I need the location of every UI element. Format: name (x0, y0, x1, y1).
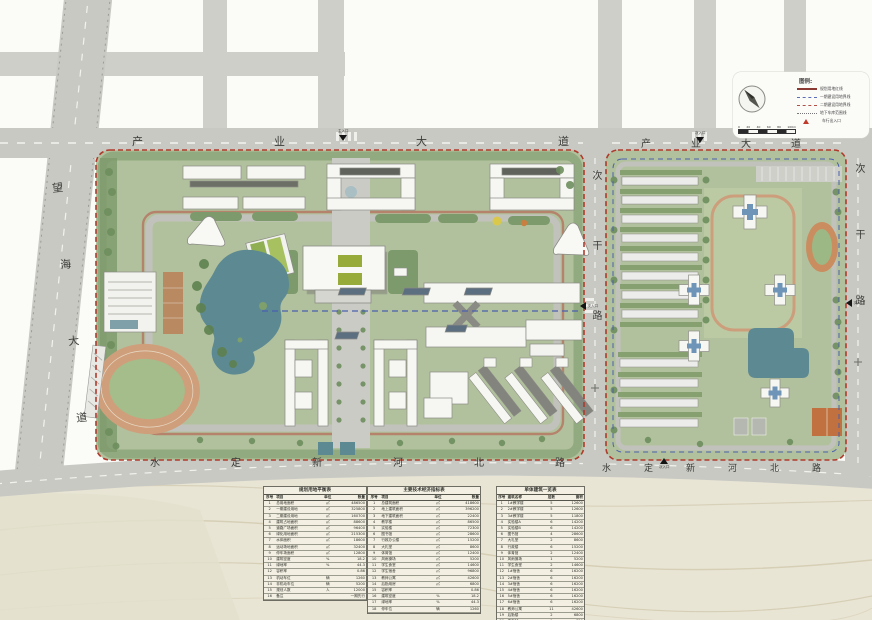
tennis-courts-left (163, 272, 183, 334)
road-label-right: 次干路 (851, 163, 866, 361)
table-row: 18 停车位 辆 1260 (368, 607, 480, 613)
legend-card: 020406080100m 图例: 规划用地红线 一期建设用地界线 二期建设用地… (733, 72, 869, 138)
legend-item-label: 规划用地红线 (820, 86, 843, 92)
gate-label: 次入口 (659, 465, 670, 470)
legend-item: 地下车库范围线 (797, 109, 867, 117)
gate-arrow-icon (339, 135, 347, 141)
legend-item: 车行出入口 (797, 117, 867, 125)
left-campus (83, 150, 593, 460)
legend-symbol-icon (797, 105, 817, 106)
legend-symbol-icon (803, 119, 809, 124)
legend-symbol-icon (797, 97, 817, 98)
road-label-chanye-west: 产业大道 (132, 133, 700, 149)
gate-north-east-campus: 次入口 (695, 131, 706, 143)
gate-label: 主入口 (338, 129, 349, 134)
legend-item: 一期建设用地界线 (797, 93, 867, 101)
legend-item-label: 二期建设用地界线 (820, 102, 850, 108)
legend-item: 规划用地红线 (797, 85, 867, 93)
scale-tick: 20 (746, 125, 750, 129)
gate-main-north: 主入口 (338, 129, 349, 141)
table-title: 规划用地平衡表 (264, 487, 366, 495)
parking-lot (756, 166, 842, 182)
gate-arrow-icon (846, 299, 852, 307)
gate-east-road: 次入口 (846, 299, 864, 307)
table-row: 16 备注 一期先行 (264, 594, 366, 600)
legend-items: 规划用地红线 一期建设用地界线 二期建设用地界线 地下车库范围线 车行出入口 (797, 85, 867, 125)
gate-label: 次入口 (854, 301, 865, 306)
compass-icon (737, 84, 767, 114)
master-plan-canvas: 产业大道 产业大道 望海大道 次干路 次干路 水定新河北路 水定新河北路 主入口… (0, 0, 872, 620)
legend-title: 图例: (799, 77, 812, 85)
legend-symbol-icon (797, 113, 817, 114)
table-title: 单体建筑一览表 (497, 487, 584, 495)
gate-arrow-icon (696, 137, 704, 143)
scale-tick: 60 (767, 125, 771, 129)
legend-symbol-icon (797, 88, 817, 90)
road-label-middle: 次干路 (588, 170, 603, 380)
gate-south-east-campus: 次入口 (659, 458, 670, 470)
gate-arrow-icon (580, 302, 586, 310)
scale-tick: 0 (738, 125, 740, 129)
land-balance-table: 规划用地平衡表 序号 项目 单位 数量 1 总用地面积 ㎡ 486500 2 一… (263, 486, 367, 601)
gate-middle-road: 次入口 (580, 302, 598, 310)
building-list-table: 单体建筑一览表 序号 建筑名称 层数 面积 1 1#教学楼 5 12600 2 … (496, 486, 585, 620)
gate-label: 次入口 (588, 304, 599, 309)
gymnasium (104, 272, 156, 332)
road-label-shuiding-west: 水定新河北路 (150, 454, 636, 469)
right-campus (606, 150, 846, 460)
legend-item: 二期建设用地界线 (797, 101, 867, 109)
scale-ticks: 020406080100m (738, 125, 796, 129)
tech-indicator-table: 主要技术经济指标表 序号 项目 单位 数量 1 总建筑面积 ㎡ 418600 2… (367, 486, 481, 614)
legend-item-label: 车行出入口 (822, 118, 841, 124)
road-label-shuiding-east: 水定新河北路 (602, 461, 854, 474)
scale-tick: 100m (787, 125, 796, 129)
legend-item-label: 一期建设用地界线 (820, 94, 850, 100)
gate-label: 次入口 (695, 131, 706, 136)
gate-arrow-icon (660, 458, 668, 464)
scale-tick: 80 (777, 125, 781, 129)
scale-tick: 40 (757, 125, 761, 129)
legend-item-label: 地下车库范围线 (820, 110, 847, 116)
scale-bar: 020406080100m (738, 125, 796, 134)
table-title: 主要技术经济指标表 (368, 487, 480, 495)
scale-strip (738, 129, 796, 134)
small-track (806, 222, 838, 272)
